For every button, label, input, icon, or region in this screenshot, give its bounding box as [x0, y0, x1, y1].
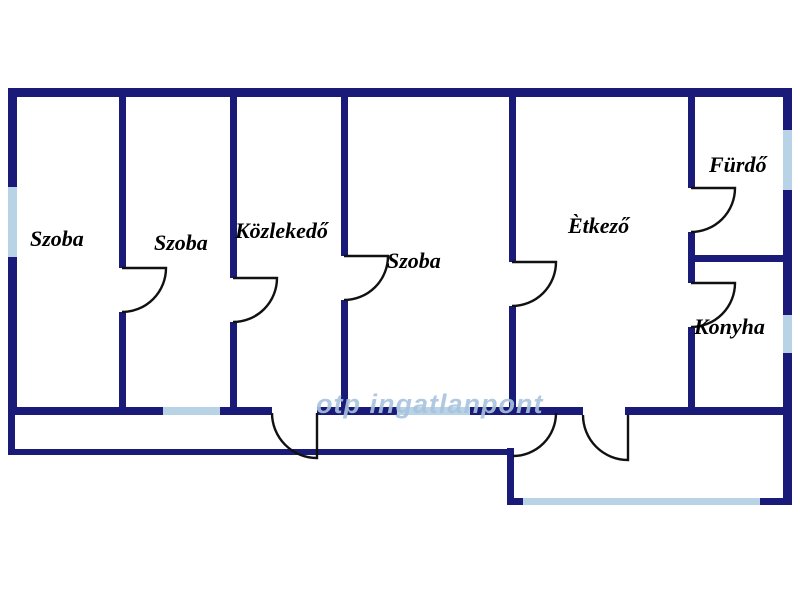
wall-szoba2-kozlekedo-upper — [230, 97, 237, 278]
wall-etkezo-konyha-lower — [688, 327, 695, 407]
room-label-szoba-3: Szoba — [387, 248, 441, 273]
wall-bottom-a — [8, 407, 272, 415]
window-szoba1-left — [8, 187, 17, 257]
room-label-szoba-2: Szoba — [154, 230, 208, 255]
walls-layer — [8, 88, 792, 505]
window-konyha-right — [783, 315, 792, 353]
window-furdo-right — [783, 130, 792, 190]
room-label-konyha: Konyha — [693, 314, 765, 339]
room-label-etkezo: Ètkező — [567, 213, 631, 238]
window-veranda-bottom — [523, 498, 760, 505]
wall-szoba3-etkezo-upper — [509, 97, 516, 262]
wall-szoba1-szoba2-lower — [119, 312, 126, 407]
wall-kozlekedo-szoba3-upper — [341, 97, 348, 256]
door-arc-szoba3 — [344, 256, 388, 300]
door-arc-szoba1 — [122, 268, 166, 312]
door-arc-szoba2 — [233, 278, 277, 322]
room-label-szoba-1: Szoba — [30, 226, 84, 251]
wall-furdo-konyha-divider — [688, 255, 792, 262]
floor-plan-page: Szoba Szoba Közlekedő Szoba Ètkező Fürdő… — [0, 0, 800, 600]
room-label-kozlekedo: Közlekedő — [234, 218, 330, 243]
watermark-text: otp ingatlanpont — [316, 389, 543, 419]
wall-veranda-left — [507, 448, 514, 505]
wall-bottom-c — [625, 407, 792, 415]
door-arc-etkezo — [512, 262, 556, 306]
door-arc-porch-veranda — [513, 413, 556, 456]
door-arc-furdo — [691, 188, 735, 232]
room-labels-layer: Szoba Szoba Közlekedő Szoba Ètkező Fürdő… — [30, 152, 768, 339]
wall-szoba1-szoba2-upper — [119, 97, 126, 268]
wall-etkezo-furdo-upper — [688, 97, 695, 188]
room-label-furdo: Fürdő — [708, 152, 768, 177]
doors-layer — [122, 188, 735, 460]
door-arc-veranda-main — [583, 415, 628, 460]
floor-plan-canvas: Szoba Szoba Közlekedő Szoba Ètkező Fürdő… — [0, 0, 800, 600]
window-szoba2-bottom — [163, 407, 220, 415]
wall-szoba2-kozlekedo-lower — [230, 322, 237, 407]
wall-top — [8, 88, 792, 97]
wall-porch-bottom — [8, 449, 514, 455]
